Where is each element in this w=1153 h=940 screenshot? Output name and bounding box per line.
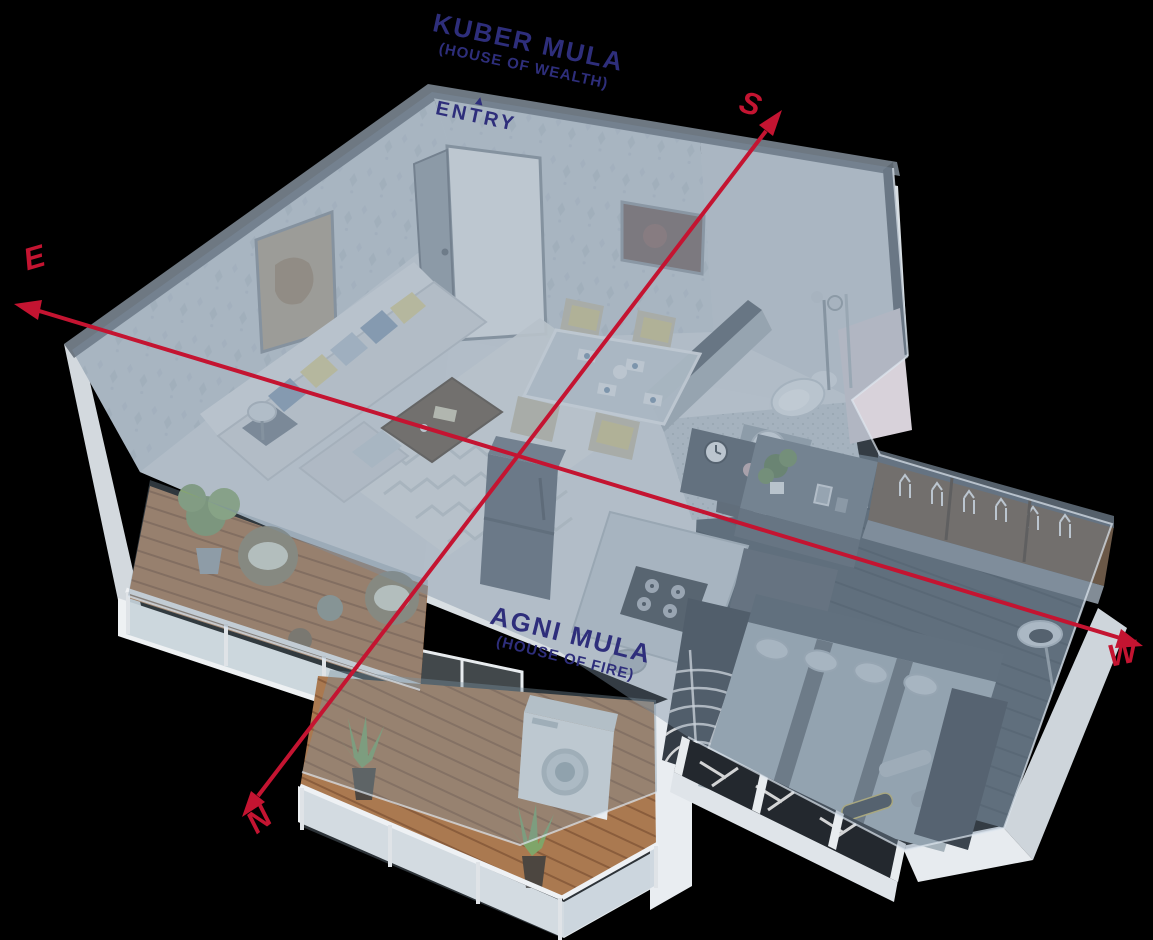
east-arrowhead-icon [14,300,42,320]
floor-plan-illustration [0,0,1153,940]
south-arrowhead-icon [759,110,782,136]
glass-overlay [72,92,1112,850]
vastu-floor-plan-scene: KUBER MULA (HOUSE OF WEALTH) ▲ ENTRY AGN… [0,0,1153,940]
